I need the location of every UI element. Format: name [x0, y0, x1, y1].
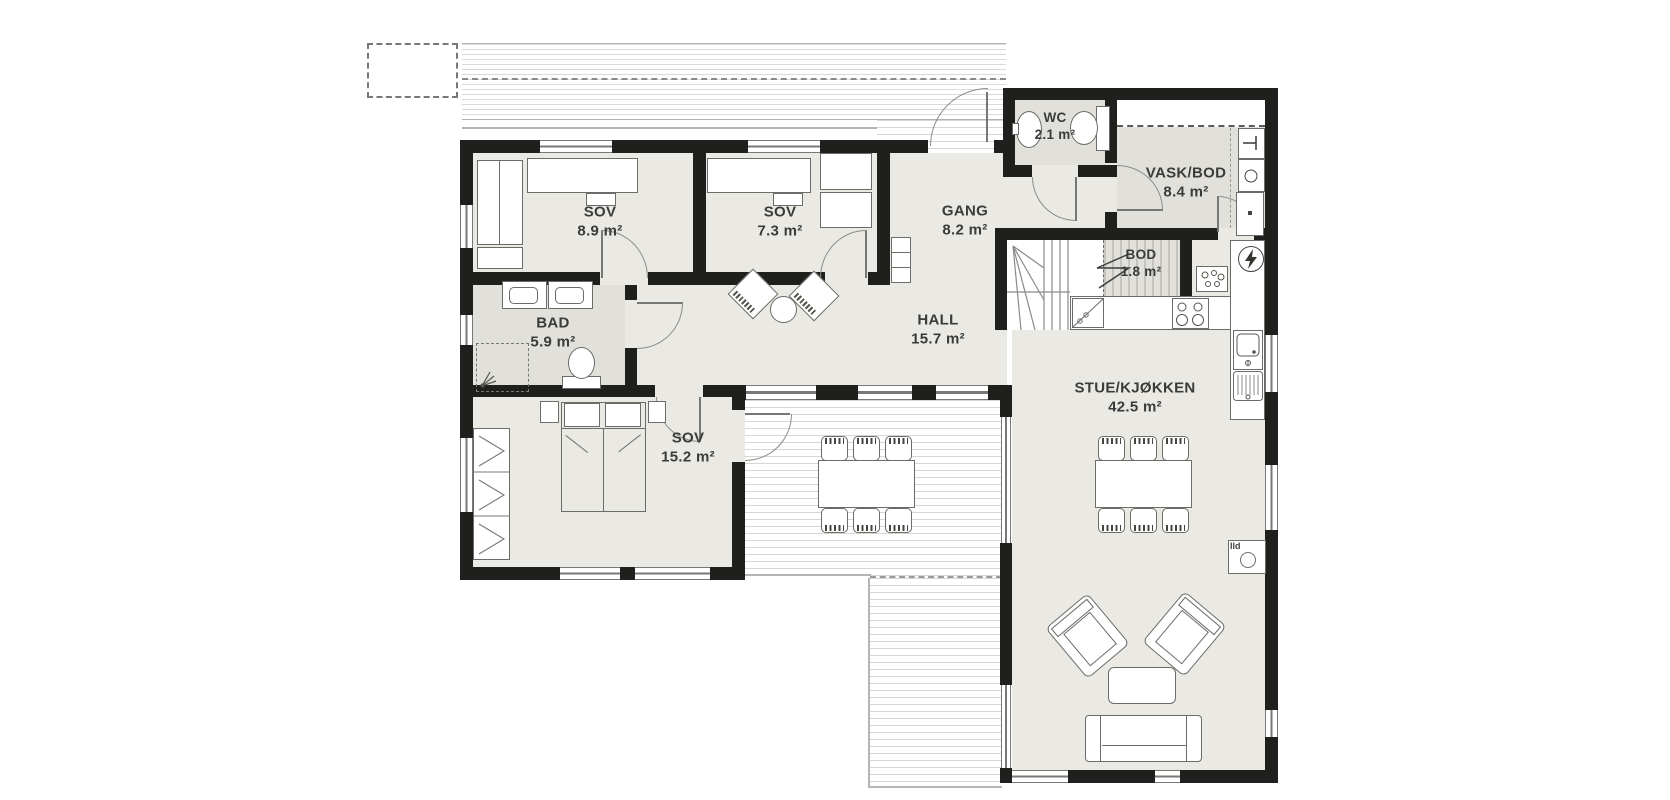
- window: [858, 385, 912, 400]
- kitchen-appliance-icon: [1196, 266, 1228, 292]
- window: [1265, 465, 1278, 530]
- dining-chair: [1162, 508, 1189, 533]
- detail-line: [892, 267, 910, 268]
- plan-element: [479, 436, 504, 466]
- room-label-sov-3: SOV15.2 m²: [661, 429, 715, 467]
- kitchen-sink-icon: [1233, 330, 1263, 370]
- plan-element: 15.2 m²: [661, 448, 715, 467]
- drying-rack-icon: [1233, 371, 1263, 401]
- plan-element: SOV: [577, 203, 622, 222]
- plan-element: [868, 578, 870, 788]
- window: [748, 140, 820, 153]
- plan-element: [825, 438, 844, 444]
- bed-pillow: [605, 403, 641, 427]
- bath-sink-bowl: [509, 287, 538, 304]
- floor-area: [625, 300, 637, 348]
- wall-segment: [1000, 399, 1012, 417]
- wall-segment: [732, 462, 745, 567]
- dining-chair: [853, 436, 880, 461]
- water-heater-icon: [1236, 192, 1264, 236]
- plan-element: VASK/BOD: [1146, 164, 1226, 183]
- dashed-annex-outline: [367, 43, 458, 98]
- bath-toilet-icon: [568, 347, 595, 379]
- wall-segment: [1265, 392, 1278, 465]
- room-label-sov-2: SOV7.3 m²: [757, 203, 802, 241]
- window: [746, 385, 816, 400]
- plan-element: [1248, 211, 1252, 215]
- bench-dashed-line: [1117, 125, 1265, 127]
- plan-element: [479, 480, 504, 510]
- plan-element: 42.5 m²: [1074, 398, 1195, 417]
- wall-segment: [460, 345, 473, 438]
- plan-element: [1252, 350, 1256, 354]
- wall-segment: [1180, 770, 1278, 783]
- plan-element: [1007, 240, 1070, 330]
- plan-element: [479, 524, 504, 554]
- dining-chair: [885, 508, 912, 533]
- plan-element: [1166, 525, 1185, 531]
- wall-segment: [1105, 212, 1117, 240]
- detail-line: [565, 435, 588, 453]
- plan-element: [889, 438, 908, 444]
- plan-element: 8.9 m²: [577, 222, 622, 241]
- dining-chair: [1098, 508, 1125, 533]
- wall-segment: [1078, 165, 1117, 177]
- plan-element: BAD: [530, 314, 575, 333]
- window: [460, 438, 473, 512]
- bed: [527, 158, 638, 193]
- wall-segment: [710, 567, 745, 580]
- deck-edge-dashed: [870, 576, 1002, 578]
- faucet-icon: [1238, 128, 1265, 159]
- window: [460, 315, 473, 345]
- roof-ridge-dashed-line: [462, 78, 1006, 80]
- wall-segment: [625, 348, 637, 397]
- detail-line: [892, 252, 910, 253]
- wall-segment: [912, 385, 936, 400]
- wall-segment: [620, 567, 635, 580]
- window: [540, 140, 612, 153]
- plan-element: GANG: [942, 202, 988, 221]
- plan-element: SOV: [661, 429, 715, 448]
- plan-element: HALL: [911, 311, 965, 330]
- nightstand: [648, 401, 666, 423]
- wall-segment: [732, 399, 745, 410]
- plan-element: [1100, 716, 1101, 761]
- dining-chair: [885, 436, 912, 461]
- plan-element: [825, 525, 844, 531]
- window: [1155, 770, 1180, 783]
- plan-element: 8.4 m²: [1146, 183, 1226, 202]
- wall-segment: [820, 140, 928, 153]
- plan-element: [1186, 716, 1187, 761]
- electrical-panel-icon: [1237, 245, 1265, 273]
- plan-element: 2.1 m²: [1035, 127, 1076, 144]
- floor-area: [1117, 100, 1265, 127]
- plan-element: [1102, 745, 1186, 746]
- dining-chair: [821, 436, 848, 461]
- sofa: [1085, 715, 1202, 762]
- window: [936, 385, 988, 400]
- hall-side-table: [770, 296, 797, 323]
- window: [560, 567, 620, 580]
- plan-element: [1134, 525, 1153, 531]
- window: [1012, 770, 1068, 783]
- shelf: [891, 237, 911, 283]
- wall-segment: [612, 140, 748, 153]
- wall-segment: [732, 385, 746, 400]
- washer-icon: [1238, 159, 1265, 192]
- coffee-table: [1108, 667, 1176, 704]
- plan-element: WC: [1035, 110, 1076, 127]
- detail-line: [618, 434, 641, 452]
- bath-sink-bowl: [555, 287, 584, 304]
- plan-element: [1166, 438, 1185, 444]
- shower-icon: [479, 369, 499, 389]
- room-label-hall: HALL15.7 m²: [911, 311, 965, 349]
- room-label-vaskbod: VASK/BOD8.4 m²: [1146, 164, 1226, 202]
- wall-segment: [460, 140, 473, 205]
- bed-pillow: [564, 403, 600, 427]
- wc-toilet-tank: [1096, 106, 1110, 151]
- dining-chair: [1162, 436, 1189, 461]
- terrace-deck-lower: [870, 578, 1002, 788]
- window: [1001, 417, 1011, 543]
- dining-chair: [1130, 508, 1157, 533]
- wall-segment: [995, 240, 1007, 330]
- room-label-bad: BAD5.9 m²: [530, 314, 575, 352]
- room-label-stue-kjokken: STUE/KJØKKEN42.5 m²: [1074, 379, 1195, 417]
- wall-segment: [1068, 770, 1155, 783]
- wall-segment: [1265, 530, 1278, 710]
- window: [1265, 335, 1278, 392]
- detail-line: [603, 428, 604, 511]
- plan-element: [473, 436, 510, 554]
- floor-area: [1032, 165, 1078, 177]
- floor-plan: Ild SOV8.9 m² SOV7.3 m² GANG8.2 m² WC2.1…: [0, 0, 1670, 800]
- wall-segment: [1003, 88, 1278, 100]
- fireplace-label: Ild: [1230, 541, 1241, 551]
- window: [1001, 685, 1011, 768]
- dining-chair: [821, 508, 848, 533]
- plan-element: 8.2 m²: [942, 221, 988, 240]
- wall-segment: [1265, 737, 1278, 783]
- room-label-sov-1: SOV8.9 m²: [577, 203, 622, 241]
- dining-table: [1095, 460, 1192, 508]
- dining-chair: [1130, 436, 1157, 461]
- stove-icon: [1172, 298, 1209, 329]
- wall-segment: [693, 153, 706, 272]
- window: [460, 205, 473, 248]
- plan-element: 1.8 m²: [1121, 264, 1162, 281]
- wall-segment: [877, 153, 890, 285]
- wall-segment: [988, 385, 1012, 400]
- fireplace-pipe: [1240, 552, 1256, 568]
- dishwasher-icon: [1072, 298, 1104, 328]
- wall-segment: [1000, 768, 1012, 783]
- dining-chair: [853, 508, 880, 533]
- dining-chair: [1098, 436, 1125, 461]
- wall-segment: [460, 512, 473, 580]
- dresser: [477, 247, 523, 269]
- wall-segment: [1000, 543, 1012, 685]
- plan-element: BOD: [1121, 247, 1162, 264]
- wall-segment: [460, 248, 473, 315]
- room-label-bod: BOD1.8 m²: [1121, 247, 1162, 281]
- plan-element: [857, 438, 876, 444]
- roof-overhang: [462, 43, 1006, 120]
- nightstand: [540, 401, 559, 423]
- plan-element: 5.9 m²: [530, 333, 575, 352]
- plan-element: STUE/KJØKKEN: [1074, 379, 1195, 398]
- plan-element: [889, 525, 908, 531]
- room-label-wc: WC2.1 m²: [1035, 110, 1076, 144]
- floor-area: [732, 410, 745, 462]
- detail-line: [499, 161, 500, 244]
- plan-element: 7.3 m²: [757, 222, 802, 241]
- plan-element: [1102, 525, 1121, 531]
- wall-segment: [816, 385, 858, 400]
- plan-element: [1239, 160, 1265, 192]
- plan-element: [868, 786, 1002, 788]
- plan-element: [1102, 438, 1121, 444]
- plan-element: [481, 372, 496, 387]
- window: [1265, 710, 1278, 737]
- wall-segment: [1265, 88, 1278, 335]
- wall-segment: [460, 567, 560, 580]
- window: [635, 567, 710, 580]
- plan-element: [1134, 438, 1153, 444]
- dining-table: [818, 460, 915, 508]
- wardrobe: [820, 153, 872, 190]
- plan-element: SOV: [757, 203, 802, 222]
- bed: [707, 158, 811, 193]
- desk: [820, 192, 872, 228]
- floor-area: [655, 385, 703, 397]
- plan-element: 15.7 m²: [911, 330, 965, 349]
- wall-segment: [625, 285, 637, 300]
- plan-element: [745, 574, 871, 576]
- wc-sink-tap: [1012, 123, 1019, 135]
- plan-element: [857, 525, 876, 531]
- room-label-gang: GANG8.2 m²: [942, 202, 988, 240]
- wardrobe-door-marks: [473, 428, 510, 560]
